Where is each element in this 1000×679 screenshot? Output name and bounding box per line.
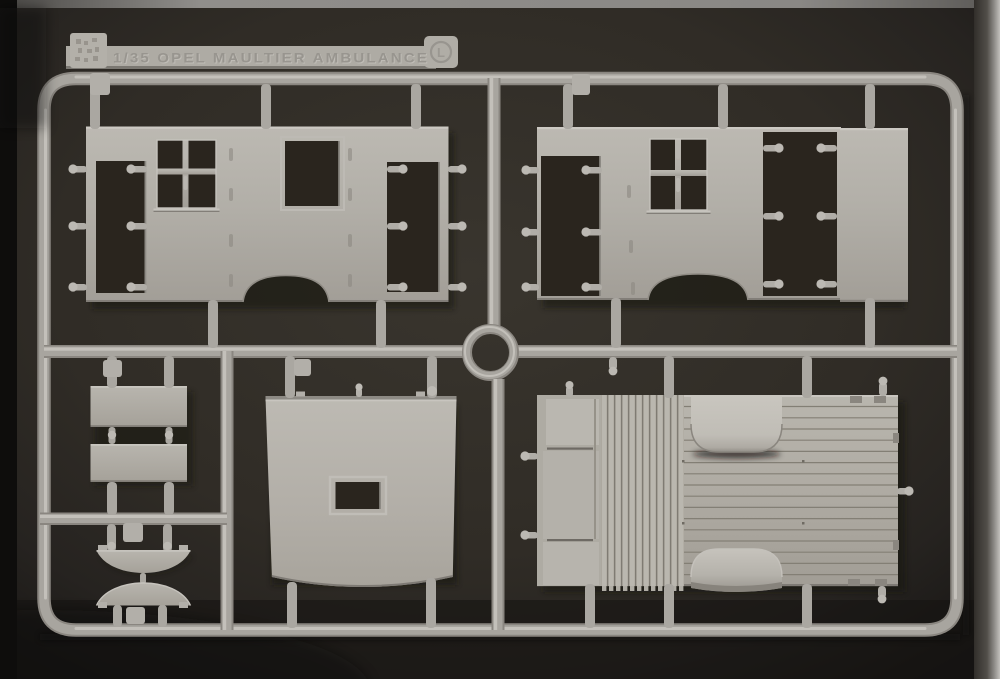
svg-text:1/35 OPEL MAULTIER AMBULANCE: 1/35 OPEL MAULTIER AMBULANCE: [113, 50, 429, 66]
svg-text:L: L: [437, 45, 445, 60]
